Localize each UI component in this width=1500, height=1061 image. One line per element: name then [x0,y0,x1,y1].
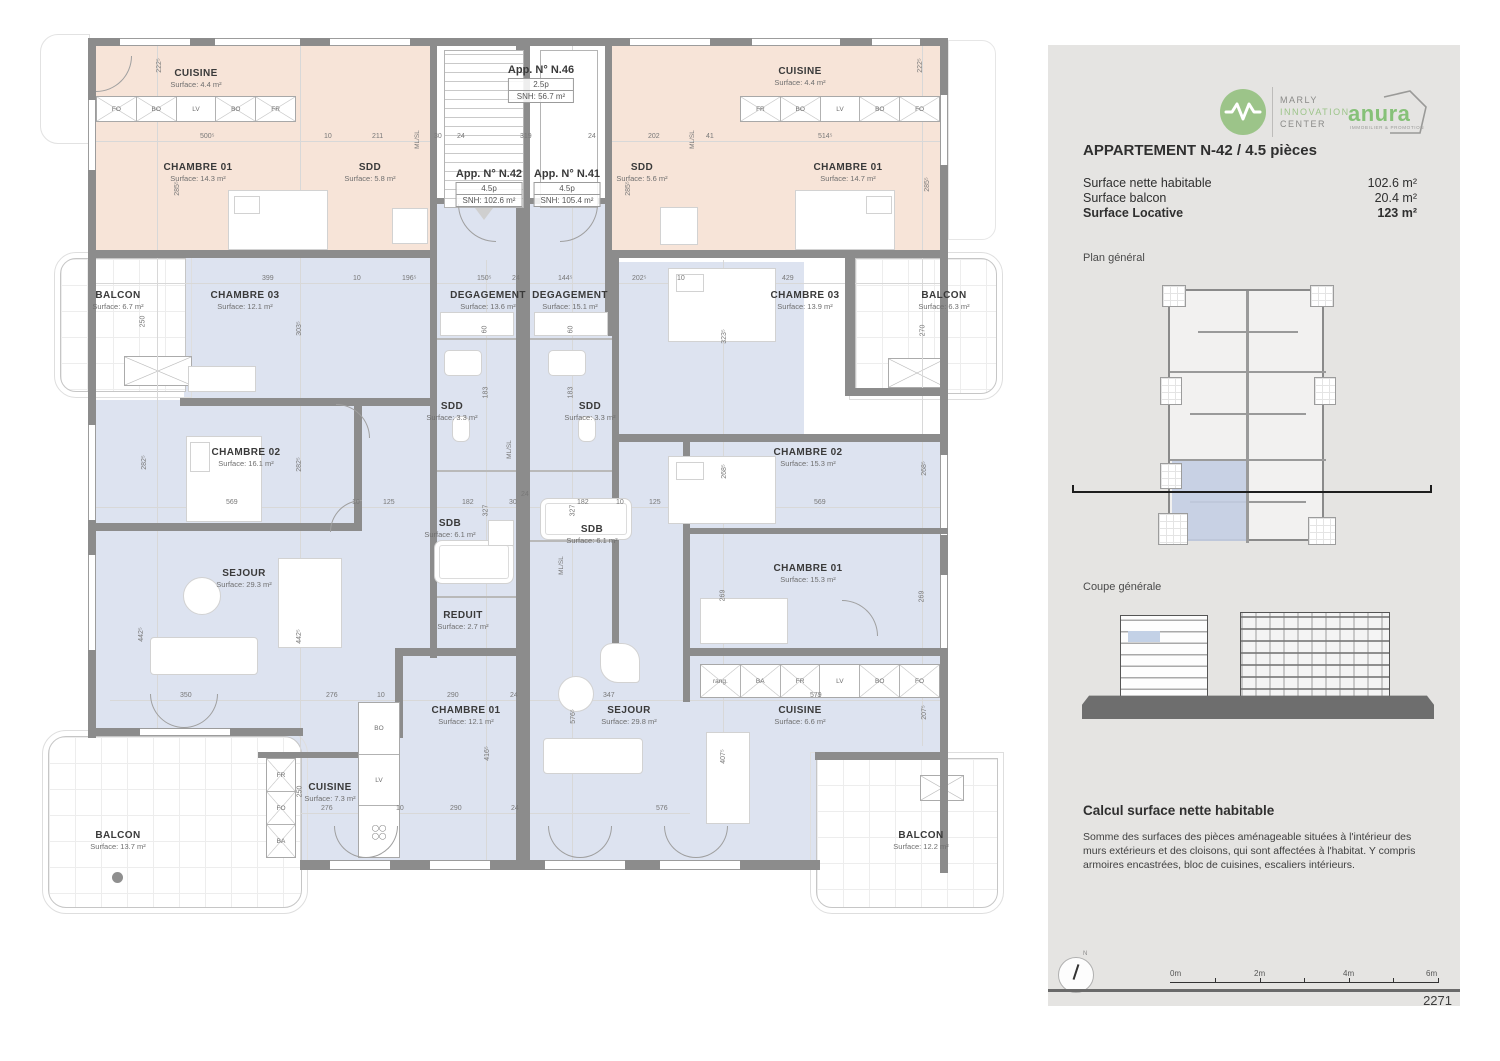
sofa [543,738,643,774]
dim: 579 [810,692,822,699]
window [752,38,840,46]
room-label-chambre02: CHAMBRE 02Surface: 16.1 m² [211,447,280,468]
window [940,95,948,165]
kitchen-cell: FO [899,665,939,697]
mlsl-label: ML/SL [689,130,696,149]
dim: 276 [326,692,338,699]
marly-line1: MARLY [1280,94,1350,106]
apartment-number: App. N° N.41 [534,168,601,180]
dim: 202 [648,133,660,140]
dim: 319 [520,133,532,140]
mini-balcony [1160,377,1182,405]
scale-segment [1348,982,1393,983]
pillow [866,196,892,214]
neighbour-outline [40,34,90,144]
dim: 150⁵ [477,275,492,282]
kitchen-cell: LV [819,665,859,697]
partition [437,338,516,340]
apartment-snh: SNH: 102.6 m² [457,194,522,206]
dim: 569 [814,499,826,506]
window [872,38,920,46]
axis-line [922,46,923,746]
anura-tagline: IMMOBILIER & PROMOTION [1350,125,1424,130]
dining-table [278,558,342,648]
room-label-degagement: DEGAGEMENTSurface: 15.1 m² [532,290,608,311]
dim: 282⁵ [141,455,148,470]
pillow [234,196,260,214]
balcony-drain [112,872,123,883]
surface-value: 20.4 m² [1375,191,1417,205]
room-label-cuisine: CUISINESurface: 6.6 m² [774,705,825,726]
mini-wall [1170,371,1326,373]
wall-n42-ch01-top [395,648,520,656]
dim: 327 [569,505,576,517]
mlsl-label: ML/SL [558,556,565,575]
kitchen-cell: LV [820,97,860,121]
sheet-number: 2271 [1423,993,1452,1008]
apartment-rooms: 4.5p [457,183,522,194]
dim: 569 [226,499,238,506]
dim: 350 [180,692,192,699]
compass-needle [1073,964,1080,980]
calc-text: Somme des surfaces des pièces aménageabl… [1083,830,1419,872]
room-label-chambre01: CHAMBRE 01Surface: 12.1 m² [431,705,500,726]
window [330,38,410,46]
wall-n42-hall [430,258,437,658]
room-label-balcon: BALCONSurface: 13.7 m² [90,830,145,851]
shower [660,207,698,245]
window [215,38,300,46]
marly-line3: CENTER [1280,118,1350,130]
mini-balcony [1314,377,1336,405]
dim: 303⁵ [296,321,303,336]
dim: 268⁵ [921,461,928,476]
window [88,425,96,520]
dim: 268⁵ [721,464,728,479]
window [330,860,390,870]
section-building-left [1120,615,1208,701]
dim: 10 [352,499,360,506]
kitchen-cell: BO [859,665,899,697]
surface-value: 102.6 m² [1368,176,1417,190]
dim: 183 [567,387,574,399]
partition [437,470,516,472]
coupe-label: Coupe générale [1083,581,1161,593]
dim: 323⁵ [721,329,728,344]
kitchen-cell: BO [136,97,176,121]
wall-under-pink-left [95,250,437,258]
mini-balcony [1158,513,1188,545]
dim: 576 [656,805,668,812]
room-label-sdd: SDDSurface: 3.3 m² [426,401,477,422]
mlsl-label: ML/SL [414,130,421,149]
dim: 30 [509,499,517,506]
mini-highlight-n42 [1188,521,1246,541]
floor-plan: FO BO LV BO FR FR BO LV BO FO rang. BA F… [0,0,1040,1061]
dim: 290 [447,692,459,699]
dim: 222⁵ [156,58,163,73]
window [940,575,948,655]
marly-line2: INNOVATION [1280,106,1350,118]
kitchen-cell: LV [176,97,216,121]
dim: 125 [649,499,661,506]
kitchen-cell: BO [215,97,255,121]
kitchen-cell: FO [97,97,136,121]
dim: 500⁵ [200,133,215,140]
apartment-number: App. N° N.42 [456,168,523,180]
section-building-right [1240,612,1390,701]
compass: N [1058,957,1094,993]
washer [488,520,514,546]
balcony-hatch [124,356,192,386]
apartment-snh: SNH: 56.7 m² [509,90,573,102]
scale-segment [1304,978,1350,983]
footer-rule [1048,989,1460,992]
mini-plan [1168,289,1324,541]
dim: 576⁵ [570,709,577,724]
apartment-info-box: 2.5p SNH: 56.7 m² [508,78,574,103]
kitchen-strip-pink-left: FO BO LV BO FR [96,96,296,122]
wall-balcony-right-bottom [855,388,948,396]
kitchen-cell: BO [359,703,399,754]
mini-wall [1246,291,1249,543]
dim: 347 [603,692,615,699]
dim: 41 [706,133,714,140]
room-label-cuisine: CUISINESurface: 4.4 m² [774,66,825,87]
kitchen-cell: rang. [701,665,740,697]
dim: 10 [677,275,685,282]
kitchen-cell: FO [899,97,939,121]
apartment-tag-n41: App. N° N.41 4.5p SNH: 105.4 m² [534,168,601,207]
scale-bar: 0m 2m 4m 6m [1170,969,1438,985]
apartment-rooms: 4.5p [535,183,600,194]
kitchen-cell: BA [740,665,780,697]
scale-label: 4m [1343,969,1354,978]
kitchen-cell: FR [255,97,295,121]
shower [392,208,428,244]
mini-balcony [1310,285,1334,307]
room-label-chambre03: CHAMBRE 03Surface: 13.9 m² [770,290,839,311]
mlsl-label: ML/SL [506,440,513,459]
wall-n41-ch03 [612,434,948,442]
kitchen-cell: FO [267,791,295,824]
kitchen-strip-pink-right: FR BO LV BO FO [740,96,940,122]
room-label-chambre03: CHAMBRE 03Surface: 12.1 m² [210,290,279,311]
balcony-hatch [888,358,946,388]
dim: 290 [450,805,462,812]
dim: 270 [919,325,926,337]
neighbour-outline [948,40,996,240]
plan-general-label: Plan général [1083,252,1145,264]
dim: 285⁵ [174,181,181,196]
dim: 282⁵ [296,457,303,472]
scale-segment [1393,978,1439,983]
apartment-title: APPARTEMENT N-42 / 4.5 pièces [1083,142,1317,159]
room-label-chambre01: CHAMBRE 01Surface: 14.3 m² [163,162,232,183]
window [88,555,96,650]
pillow [676,462,704,480]
sofa [150,637,258,675]
section-ground [1082,693,1434,719]
apartment-tag-n42: App. N° N.42 4.5p SNH: 102.6 m² [456,168,523,207]
kitchen-cell: BO [780,97,820,121]
section-cut-line [1072,491,1432,493]
washbasin [444,350,482,376]
scale-label: 6m [1426,969,1437,978]
mini-balcony [1162,285,1186,307]
armchair [600,643,640,683]
surface-label: Surface nette habitable [1083,176,1212,190]
dim: 182 [462,499,474,506]
wall-bottom-right [815,752,948,760]
room-label-balcon: BALCONSurface: 6.3 m² [918,290,969,311]
kitchen-cell: LV [359,754,399,806]
kitchen-cell: BA [267,824,295,857]
wall-n42-ch03 [180,398,437,406]
apartment-tag-n46: App. N° N.46 2.5p SNH: 56.7 m² [508,64,574,103]
apartment-info-box: 4.5p SNH: 105.4 m² [534,182,601,207]
dim: 24 [512,275,520,282]
marly-wave-icon [1220,89,1266,135]
dim: 24 [521,491,529,498]
dim: 250 [139,316,146,328]
surface-row: Surface balcon 20.4 m² [1083,191,1417,205]
scale-segment [1259,982,1304,983]
partition [530,338,612,340]
dim: 196⁵ [402,275,417,282]
dim: 60 [567,326,574,334]
dim: 10 [396,805,404,812]
scale-label: 0m [1170,969,1181,978]
kitchen-cell: FR [267,759,295,791]
axis-line [612,141,942,142]
surface-value: 123 m² [1377,206,1417,220]
dim: 285⁵ [924,177,931,192]
partition [437,596,516,598]
room-label-sdd: SDDSurface: 5.8 m² [344,162,395,183]
room-label-sdd: SDDSurface: 5.6 m² [616,162,667,183]
room-label-sejour: SEJOURSurface: 29.3 m² [216,568,271,589]
closet [440,312,514,336]
room-label-chambre01: CHAMBRE 01Surface: 15.3 m² [773,563,842,584]
room-label-chambre02: CHAMBRE 02Surface: 15.3 m² [773,447,842,468]
section-highlight [1128,631,1160,642]
window [88,100,96,170]
room-label-sdb: SDBSurface: 6.1 m² [566,524,617,545]
dim: 24 [588,133,596,140]
window [940,455,948,535]
dim: 514⁵ [818,133,833,140]
scale-segment [1215,978,1261,983]
calc-title: Calcul surface nette habitable [1083,803,1274,818]
room-label-balcon: BALCONSurface: 6.7 m² [92,290,143,311]
surface-label: Surface Locative [1083,206,1183,220]
bed-single [700,598,788,644]
room-label-balcon: BALCONSurface: 12.2 m² [893,830,948,851]
dim: 144⁵ [558,275,573,282]
room-label-sejour: SEJOURSurface: 29.8 m² [601,705,656,726]
wall-n42-ch02-h [95,523,361,531]
mini-balcony [1160,463,1182,489]
info-panel: MARLY INNOVATION CENTER anura IMMOBILIER… [1048,45,1460,1006]
marly-logo [1220,89,1266,135]
room-label-chambre01: CHAMBRE 01Surface: 14.7 m² [813,162,882,183]
dim: 276 [321,805,333,812]
dim: 429 [782,275,794,282]
dim: 399 [262,275,274,282]
dim: 285⁵ [625,181,632,196]
dim: 269 [719,590,726,602]
wall-balcony-right-top [845,250,855,396]
anura-wordmark: anura [1348,101,1410,127]
apartment-number: App. N° N.46 [508,64,574,76]
kitchen-cell: FR [741,97,780,121]
scale-label: 2m [1254,969,1265,978]
pillow [190,442,210,472]
dim: 24 [510,692,518,699]
mini-wall [1190,413,1306,415]
kitchen-cell: BO [859,97,899,121]
partition [530,470,612,472]
wall-n41-hall [612,258,619,658]
mini-balcony [1308,517,1336,545]
wall-under-pink-right [612,250,940,258]
dim: 24 [457,133,465,140]
section-cut-tick [1072,485,1074,493]
dim: 10 [353,275,361,282]
n41-hall-zone [530,204,612,660]
apartment-snh: SNH: 105.4 m² [535,194,600,206]
anura-logo: anura IMMOBILIER & PROMOTION [1348,93,1428,137]
window [630,38,710,46]
window [430,860,490,870]
wall-n41-ch02 [690,528,948,534]
dim: 442⁵ [138,627,145,642]
n42-ch01-zone [398,656,516,862]
dim: 207⁵ [921,705,928,720]
axis-line [157,46,158,736]
sideboard [188,366,256,392]
surface-label: Surface balcon [1083,191,1166,205]
dim: 30 [434,133,442,140]
section-cut-tick [1430,485,1432,493]
room-label-degagement: DEGAGEMENTSurface: 13.6 m² [450,290,526,311]
dim: 10 [616,499,624,506]
room-label-cuisine: CUISINESurface: 4.4 m² [170,68,221,89]
scale-segment [1170,982,1215,983]
wall-n41-ch01 [690,648,948,656]
window [660,860,740,870]
washbasin [548,350,586,376]
window [545,860,625,870]
bathtub [434,540,514,584]
mini-wall [1198,331,1298,333]
dim: 442⁵ [296,629,303,644]
dining-table [706,732,750,824]
dim: 250 [296,786,303,798]
plan-sheet: FO BO LV BO FR FR BO LV BO FO rang. BA F… [0,0,1500,1061]
marly-logo-divider [1272,87,1273,137]
compass-n-label: N [1083,951,1087,957]
window [120,38,190,46]
dim: 416⁵ [484,746,491,761]
room-label-reduit: REDUITSurface: 2.7 m² [437,610,488,631]
dim: 60 [481,326,488,334]
dim: 211 [372,133,383,140]
dim: 10 [377,692,385,699]
surface-row: Surface nette habitable 102.6 m² [1083,176,1417,190]
balcony-bottom-left [48,736,302,908]
n42-hall-zone [437,204,516,660]
dim: 125 [383,499,395,506]
marly-logo-text: MARLY INNOVATION CENTER [1280,94,1350,130]
dim: 269 [918,591,925,603]
rug [558,676,594,712]
axis-line [95,141,437,142]
room-label-cuisine: CUISINESurface: 7.3 m² [304,782,355,803]
apartment-rooms: 2.5p [509,79,573,90]
dim: 222⁵ [917,58,924,73]
french-door-gap [140,728,230,736]
surface-row-locative: Surface Locative 123 m² [1083,206,1417,220]
dim: 407⁵ [720,749,727,764]
dim: 10 [324,133,332,140]
ground-mass [1082,693,1434,719]
dim: 202⁵ [632,275,647,282]
kitchen-side-n42: FR FO BA [266,758,296,858]
room-label-sdb: SDBSurface: 6.1 m² [424,518,475,539]
dim: 183 [482,387,489,399]
dim: 24 [511,805,519,812]
dim: 182 [577,499,589,506]
dim: 327 [482,505,489,517]
apartment-info-box: 4.5p SNH: 102.6 m² [456,182,523,207]
room-label-sdd: SDDSurface: 3.3 m² [564,401,615,422]
